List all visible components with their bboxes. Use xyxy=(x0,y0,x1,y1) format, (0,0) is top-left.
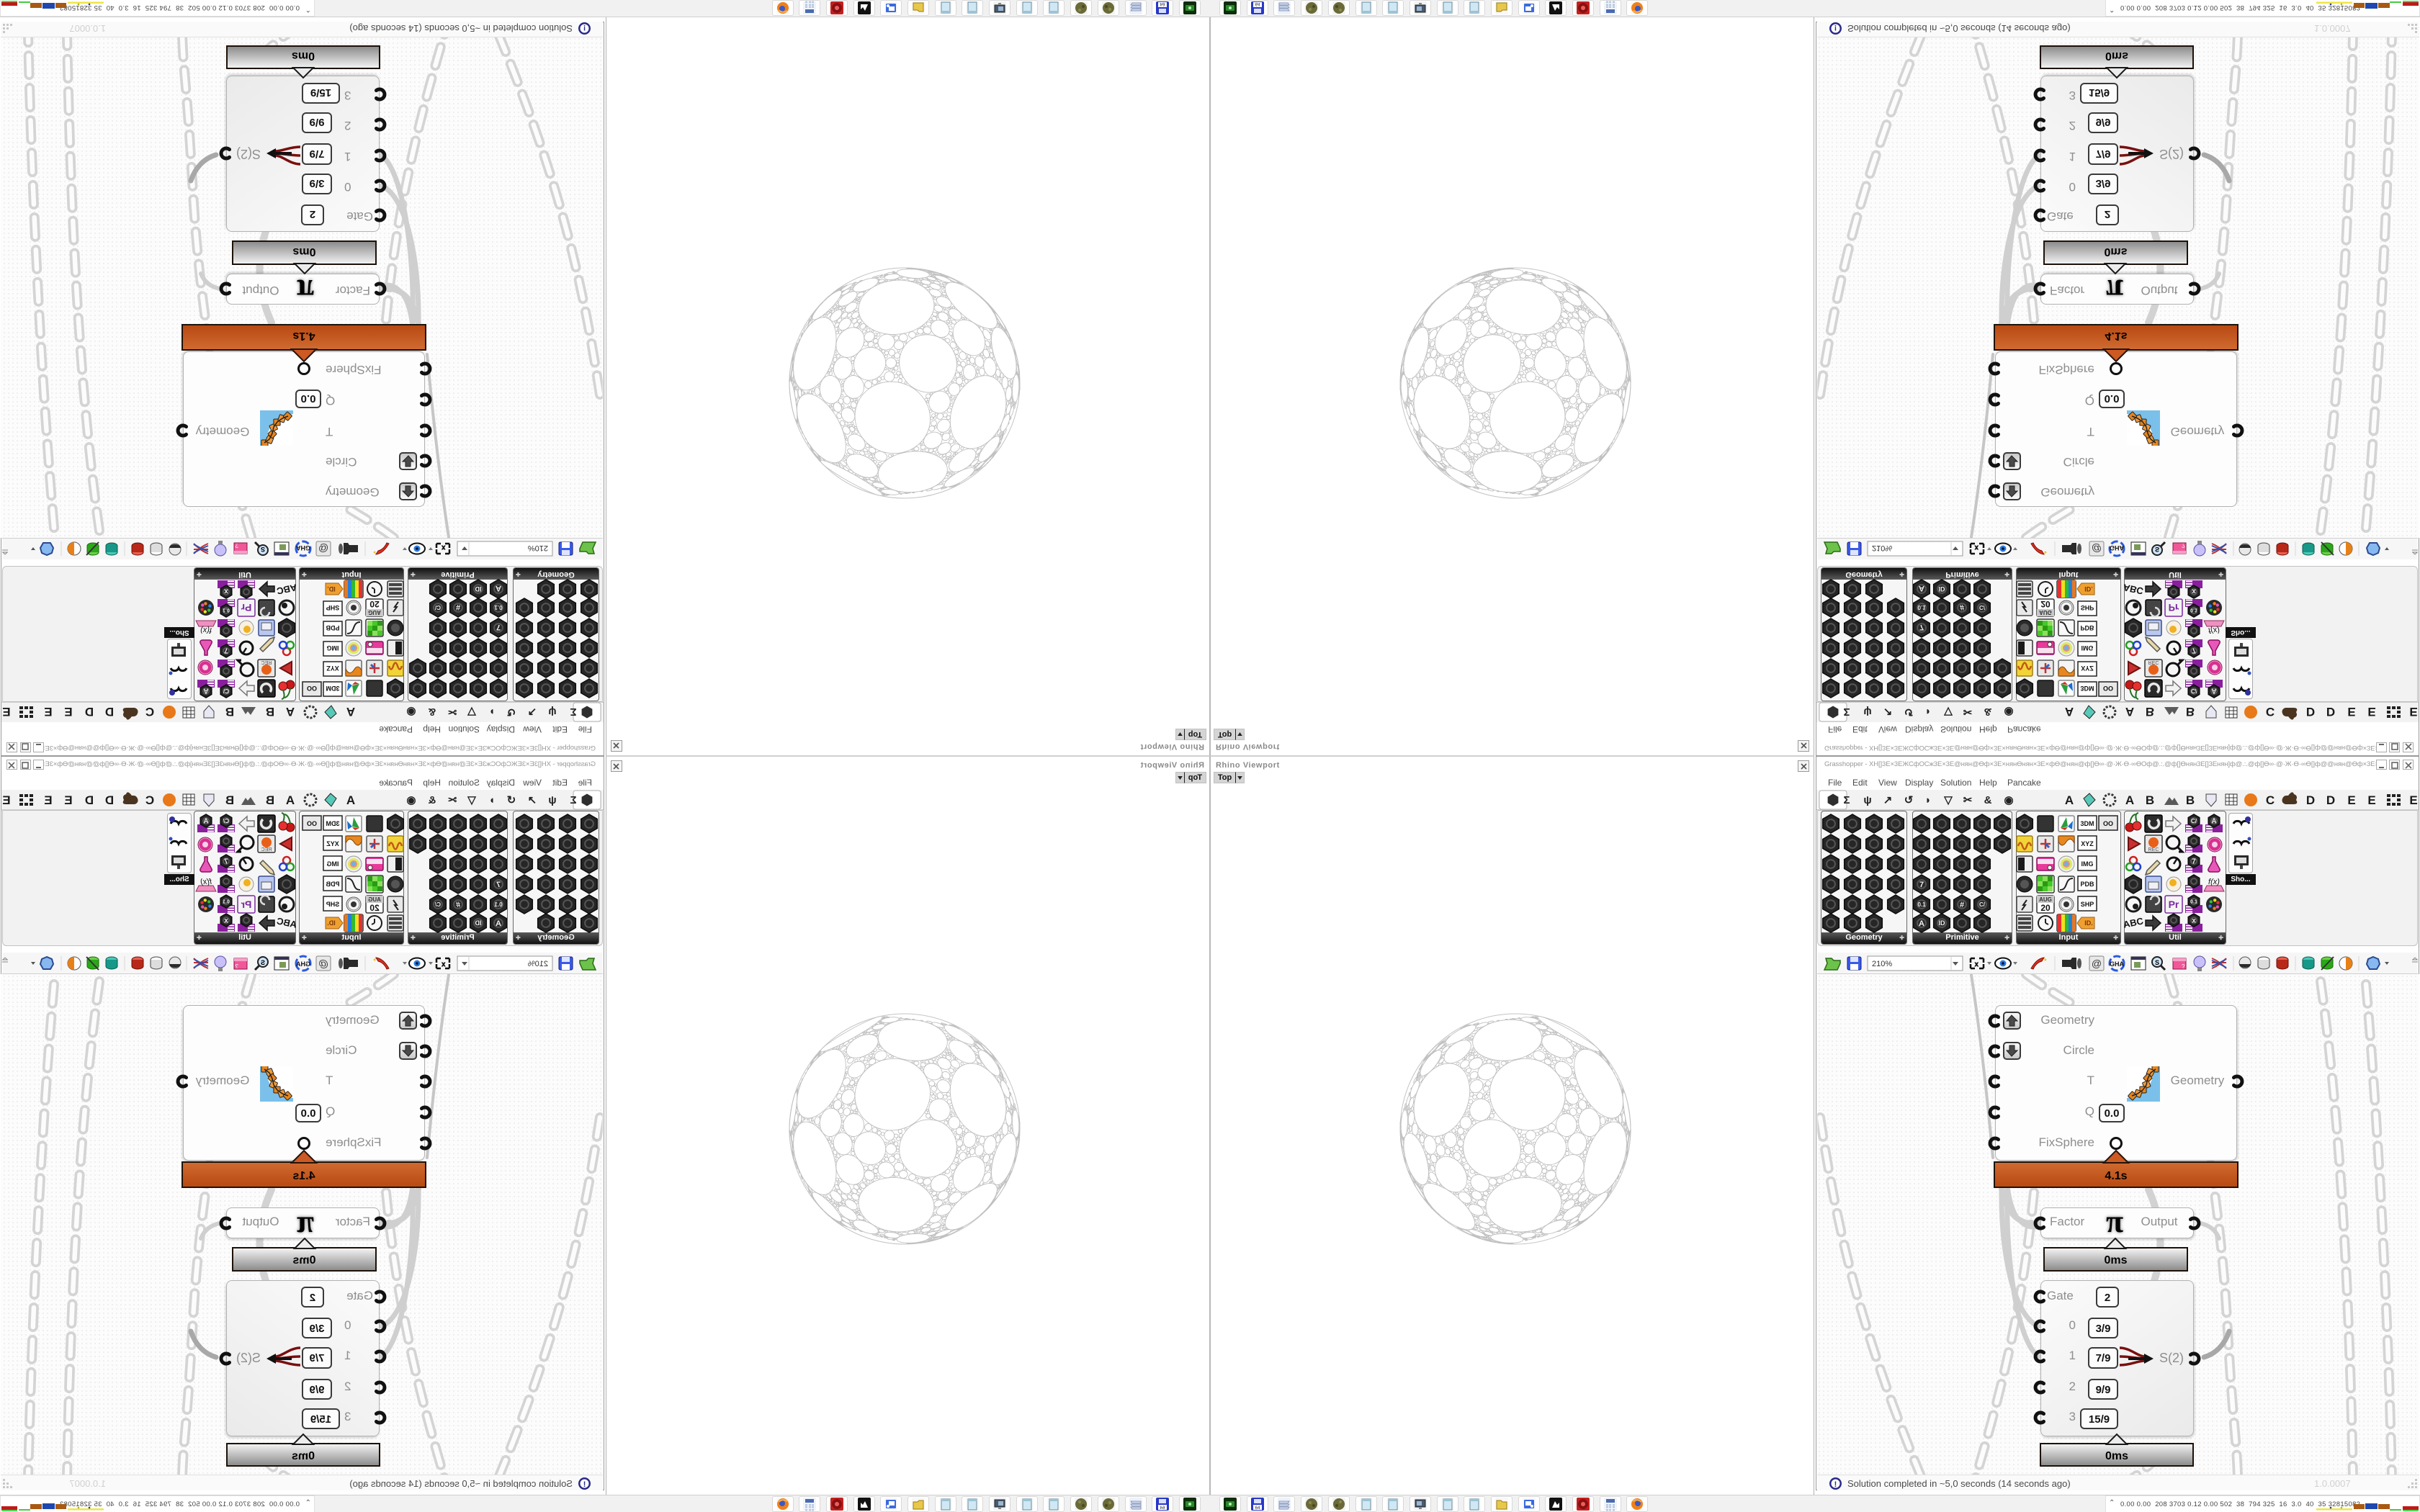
svg-text:!: ! xyxy=(1834,1480,1837,1489)
svg-text:IMG: IMG xyxy=(2081,860,2094,868)
svg-text:x: x xyxy=(224,587,228,595)
svg-text:GHA: GHA xyxy=(2110,544,2125,552)
svg-text:A: A xyxy=(496,584,501,593)
svg-text:A: A xyxy=(496,919,501,928)
svg-text:f(x): f(x) xyxy=(2208,878,2220,886)
svg-text:◗: ◗ xyxy=(488,706,495,718)
svg-text:@: @ xyxy=(318,543,328,554)
svg-text:3DM: 3DM xyxy=(326,685,339,692)
svg-text:REC: REC xyxy=(261,660,272,665)
svg-text:A: A xyxy=(346,793,355,807)
svg-text:GHA: GHA xyxy=(296,544,311,552)
svg-text:AUG: AUG xyxy=(368,896,381,903)
svg-text:XYZ: XYZ xyxy=(326,665,339,672)
svg-text:ψ: ψ xyxy=(548,794,556,806)
svg-text:f(x): f(x) xyxy=(200,626,212,634)
svg-text:3DM: 3DM xyxy=(2080,820,2094,827)
svg-text:64: 64 xyxy=(1160,1,1165,6)
svg-text:#: # xyxy=(1960,901,1964,909)
svg-text:GHA: GHA xyxy=(296,960,311,968)
svg-text:PDB: PDB xyxy=(2080,624,2094,631)
svg-text:D: D xyxy=(105,793,114,807)
svg-text:!: ! xyxy=(583,1480,586,1489)
svg-text:AUG: AUG xyxy=(368,609,381,616)
svg-text:◉: ◉ xyxy=(2004,706,2013,718)
svg-text:A: A xyxy=(2065,705,2074,719)
svg-text:?: ? xyxy=(2182,963,2185,970)
svg-text:IMG: IMG xyxy=(2081,644,2094,652)
svg-text:XYZ: XYZ xyxy=(2081,665,2094,672)
svg-text:OO: OO xyxy=(2103,820,2113,827)
svg-text:C/: C/ xyxy=(434,901,441,908)
svg-text:SHP: SHP xyxy=(2081,901,2094,908)
svg-text:IMG: IMG xyxy=(327,860,339,868)
svg-text:E: E xyxy=(2347,705,2355,719)
svg-text:x: x xyxy=(442,960,445,968)
svg-text:64: 64 xyxy=(1255,1,1260,6)
svg-text:&: & xyxy=(428,706,436,718)
svg-text:C: C xyxy=(145,793,154,807)
svg-text:C/: C/ xyxy=(223,818,229,824)
svg-text:C: C xyxy=(145,705,154,719)
svg-text:XYZ: XYZ xyxy=(326,840,339,847)
svg-text:7: 7 xyxy=(224,858,228,866)
svg-text:E: E xyxy=(2367,705,2375,719)
svg-text:x: x xyxy=(442,544,445,552)
svg-text:◗: ◗ xyxy=(1924,794,1931,806)
svg-text:AUG: AUG xyxy=(2039,896,2052,903)
svg-text:A: A xyxy=(286,705,295,719)
svg-text:D: D xyxy=(85,793,94,807)
svg-text:C/: C/ xyxy=(1979,604,1986,611)
svg-text:◉: ◉ xyxy=(406,706,416,718)
svg-text:B: B xyxy=(2186,705,2195,719)
svg-text:▽: ▽ xyxy=(467,794,477,806)
svg-text:@: @ xyxy=(2092,958,2102,969)
svg-text:x: x xyxy=(2192,917,2196,925)
svg-text:x: x xyxy=(1975,960,1978,968)
svg-text:210%: 210% xyxy=(1872,544,1892,552)
svg-text:ABC: ABC xyxy=(275,582,297,597)
svg-text:XYZ: XYZ xyxy=(2081,840,2094,847)
svg-text:0.1: 0.1 xyxy=(494,604,503,611)
svg-text:B: B xyxy=(266,705,274,719)
svg-text:7: 7 xyxy=(224,646,228,654)
svg-text:SHP: SHP xyxy=(326,901,340,908)
svg-text:A: A xyxy=(2065,793,2074,807)
svg-text:E: E xyxy=(2,705,10,719)
svg-text:B: B xyxy=(2146,705,2154,719)
svg-text:210%: 210% xyxy=(1872,960,1892,968)
svg-text:ID: ID xyxy=(475,585,482,593)
svg-text:E: E xyxy=(2409,793,2417,807)
svg-text:ID: ID xyxy=(1939,919,1946,927)
svg-text:C/: C/ xyxy=(2191,688,2197,694)
svg-text:▽: ▽ xyxy=(1943,706,1953,718)
svg-text:&: & xyxy=(1984,706,1992,718)
svg-text:REC: REC xyxy=(2148,660,2159,665)
svg-text:SHP: SHP xyxy=(2081,604,2094,611)
svg-text:#: # xyxy=(456,901,460,909)
svg-text:20: 20 xyxy=(369,599,380,609)
svg-text:C: C xyxy=(2266,705,2275,719)
svg-text:↺: ↺ xyxy=(1904,706,1914,718)
svg-text:A: A xyxy=(2125,793,2134,807)
svg-text:PDB: PDB xyxy=(2080,881,2094,888)
svg-text:210%: 210% xyxy=(528,960,548,968)
svg-text:↗: ↗ xyxy=(528,706,537,718)
svg-text:AUG: AUG xyxy=(2039,609,2052,616)
svg-text:ψ: ψ xyxy=(1863,706,1871,718)
svg-text:A: A xyxy=(286,793,295,807)
svg-text:✂: ✂ xyxy=(1963,794,1973,806)
svg-text:3DM: 3DM xyxy=(2080,685,2094,692)
svg-text:#: # xyxy=(1960,603,1964,611)
svg-text:D: D xyxy=(2306,793,2315,807)
svg-text:OO: OO xyxy=(2103,685,2113,692)
svg-text:7: 7 xyxy=(2192,858,2196,866)
svg-text:S: S xyxy=(2155,546,2159,553)
svg-text:E: E xyxy=(2,793,10,807)
svg-text:PDB: PDB xyxy=(326,624,340,631)
svg-text:D: D xyxy=(2326,793,2335,807)
svg-text:D: D xyxy=(85,705,94,719)
svg-text:B: B xyxy=(225,793,234,807)
svg-text:7: 7 xyxy=(496,623,501,631)
svg-text:↗: ↗ xyxy=(1883,794,1893,806)
svg-text:&: & xyxy=(428,794,436,806)
svg-text:OO: OO xyxy=(307,685,317,692)
svg-text:Pr: Pr xyxy=(241,899,251,910)
svg-text:@: @ xyxy=(2092,543,2102,554)
svg-text:B: B xyxy=(2186,793,2195,807)
svg-text:↺: ↺ xyxy=(1904,794,1914,806)
svg-text:A: A xyxy=(1919,919,1924,928)
svg-text:◉: ◉ xyxy=(2004,794,2013,806)
svg-text:?: ? xyxy=(235,542,238,549)
svg-text:E: E xyxy=(44,705,52,719)
svg-text:C/: C/ xyxy=(434,604,441,611)
svg-text:SHP: SHP xyxy=(326,604,340,611)
svg-text:↺: ↺ xyxy=(507,706,516,718)
svg-text:0.1: 0.1 xyxy=(494,901,503,908)
svg-text:7: 7 xyxy=(496,881,501,889)
svg-text:7: 7 xyxy=(2192,646,2196,654)
svg-text:0.1: 0.1 xyxy=(2190,608,2197,613)
svg-text:✂: ✂ xyxy=(447,706,457,718)
svg-text:7: 7 xyxy=(1919,623,1924,631)
svg-text:◗: ◗ xyxy=(488,794,495,806)
svg-text:ABC: ABC xyxy=(2123,582,2145,597)
svg-text:ID.: ID. xyxy=(2084,585,2093,593)
svg-text:ID: ID xyxy=(475,919,482,927)
svg-text:f(x): f(x) xyxy=(2208,626,2220,634)
svg-text:Σ: Σ xyxy=(1843,794,1850,806)
svg-text:✂: ✂ xyxy=(1963,706,1973,718)
svg-text:@: @ xyxy=(318,958,328,969)
svg-text:A: A xyxy=(203,818,208,826)
svg-text:64: 64 xyxy=(1255,1506,1260,1511)
svg-text:REC: REC xyxy=(2148,847,2159,852)
svg-text:PDB: PDB xyxy=(326,881,340,888)
svg-text:A: A xyxy=(203,686,208,694)
svg-text:&: & xyxy=(1984,794,1992,806)
svg-text:7: 7 xyxy=(1919,881,1924,889)
svg-text:↗: ↗ xyxy=(1883,706,1893,718)
svg-text:REC: REC xyxy=(261,847,272,852)
svg-text:E: E xyxy=(2409,705,2417,719)
svg-text:A: A xyxy=(1919,584,1924,593)
svg-text:f(x): f(x) xyxy=(200,878,212,886)
svg-text:S: S xyxy=(2155,959,2159,966)
svg-text:A: A xyxy=(2125,705,2134,719)
svg-text:0.1: 0.1 xyxy=(1917,901,1926,908)
svg-text:C/: C/ xyxy=(2191,818,2197,824)
svg-text:E: E xyxy=(64,705,72,719)
svg-text:ID.: ID. xyxy=(327,585,336,593)
svg-text:E: E xyxy=(2367,793,2375,807)
svg-text:0.1: 0.1 xyxy=(223,608,230,613)
svg-text:B: B xyxy=(266,793,274,807)
svg-text:!: ! xyxy=(583,23,586,32)
svg-text:C/: C/ xyxy=(1979,901,1986,908)
svg-text:↗: ↗ xyxy=(528,794,537,806)
svg-text:OO: OO xyxy=(307,820,317,827)
svg-text:ψ: ψ xyxy=(1863,794,1871,806)
svg-text:↺: ↺ xyxy=(507,794,516,806)
svg-text:GHA: GHA xyxy=(2110,960,2125,968)
svg-text:IMG: IMG xyxy=(327,644,339,652)
svg-text:0.1: 0.1 xyxy=(1917,604,1926,611)
svg-text:Σ: Σ xyxy=(570,706,576,718)
svg-text:Pr: Pr xyxy=(241,602,251,613)
svg-text:64: 64 xyxy=(1160,1506,1165,1511)
svg-text:C/: C/ xyxy=(223,688,229,694)
svg-text:E: E xyxy=(2347,793,2355,807)
svg-text:20: 20 xyxy=(2040,599,2051,609)
svg-text:B: B xyxy=(2146,793,2154,807)
svg-text:3DM: 3DM xyxy=(326,820,339,827)
svg-text:E: E xyxy=(64,793,72,807)
svg-text:S: S xyxy=(261,546,265,553)
svg-text:ID.: ID. xyxy=(327,919,336,927)
svg-text:D: D xyxy=(2306,705,2315,719)
svg-text:x: x xyxy=(1975,544,1978,552)
svg-text:A: A xyxy=(2211,818,2216,826)
svg-text:ABC: ABC xyxy=(2123,915,2145,930)
svg-text:Pr: Pr xyxy=(2169,602,2179,613)
svg-text:S: S xyxy=(261,959,265,966)
svg-text:#: # xyxy=(456,603,460,611)
svg-text:E: E xyxy=(44,793,52,807)
svg-text:▽: ▽ xyxy=(467,706,477,718)
svg-text:D: D xyxy=(105,705,114,719)
svg-text:x: x xyxy=(2192,587,2196,595)
svg-text:ABC: ABC xyxy=(275,915,297,930)
svg-text:▽: ▽ xyxy=(1943,794,1953,806)
svg-text:ID.: ID. xyxy=(2084,919,2093,927)
svg-text:Pr: Pr xyxy=(2169,899,2179,910)
svg-text:A: A xyxy=(346,705,355,719)
svg-text:✂: ✂ xyxy=(447,794,457,806)
svg-text:Σ: Σ xyxy=(1843,706,1850,718)
svg-text:?: ? xyxy=(2182,542,2185,549)
svg-text:C: C xyxy=(2266,793,2275,807)
svg-text:B: B xyxy=(225,705,234,719)
svg-text:0.1: 0.1 xyxy=(223,900,230,905)
svg-text:ID: ID xyxy=(1939,585,1946,593)
svg-text:◉: ◉ xyxy=(406,794,416,806)
svg-text:210%: 210% xyxy=(528,544,548,552)
svg-text:D: D xyxy=(2326,705,2335,719)
svg-text:Σ: Σ xyxy=(570,794,576,806)
svg-text:◗: ◗ xyxy=(1924,706,1931,718)
svg-text:!: ! xyxy=(1834,23,1837,32)
svg-text:x: x xyxy=(224,917,228,925)
svg-text:ψ: ψ xyxy=(548,706,556,718)
svg-text:?: ? xyxy=(235,963,238,970)
svg-text:A: A xyxy=(2211,686,2216,694)
svg-text:20: 20 xyxy=(369,903,380,913)
svg-text:20: 20 xyxy=(2040,903,2051,913)
svg-text:0.1: 0.1 xyxy=(2190,900,2197,905)
